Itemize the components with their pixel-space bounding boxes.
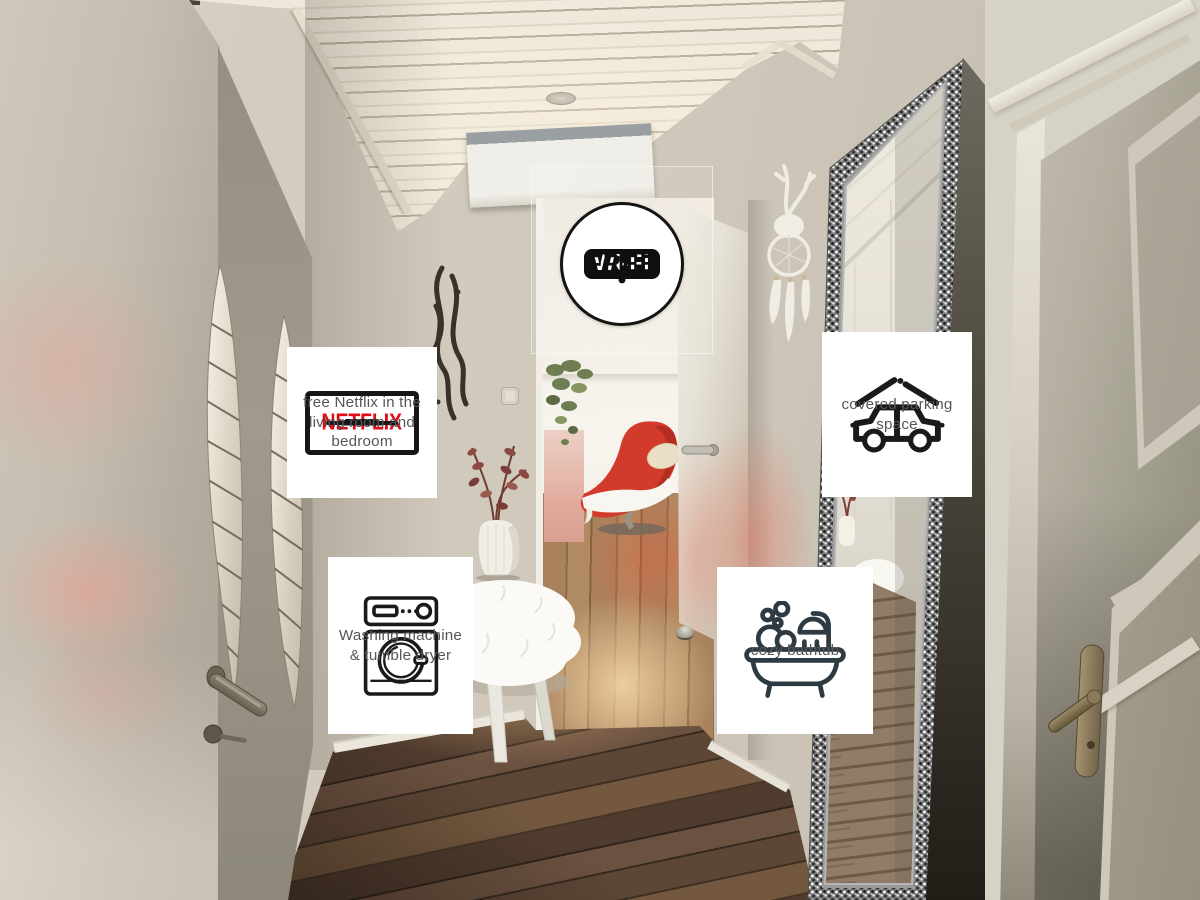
light-switch[interactable] xyxy=(501,387,519,405)
bathtub-badge: cozy bathtub xyxy=(717,567,873,734)
right-door-handle[interactable] xyxy=(1040,635,1120,795)
parking-caption: covered parking space xyxy=(833,395,961,435)
left-open-door[interactable] xyxy=(0,0,220,900)
recessed-ceiling-light xyxy=(546,92,576,105)
laundry-caption: Washing machine & tumble dryer xyxy=(333,626,468,666)
laundry-badge: Washing machine & tumble dryer xyxy=(328,557,473,734)
right-door-area xyxy=(985,0,1200,900)
covered-parking-badge: covered parking space xyxy=(822,332,972,497)
pink-light-reflection xyxy=(20,630,190,760)
netflix-badge: NETFLIX free Netflix in the living room … xyxy=(287,347,437,498)
pink-light-reflection xyxy=(0,255,180,475)
antler-dreamcatcher xyxy=(758,158,843,358)
left-door-handle[interactable] xyxy=(195,650,290,765)
bathtub-caption: cozy bathtub xyxy=(725,641,865,661)
doorstop xyxy=(676,626,694,640)
netflix-caption: free Netflix in the living room and bedr… xyxy=(292,393,432,452)
apartment-hallway-photo: Wi-Fi FREE NETFLIX free Netflix in the l… xyxy=(0,0,1200,900)
wifi-free-badge: Wi-Fi FREE xyxy=(560,202,684,326)
pink-light-reflection xyxy=(0,515,190,665)
wifi-free-label: FREE xyxy=(587,252,658,277)
